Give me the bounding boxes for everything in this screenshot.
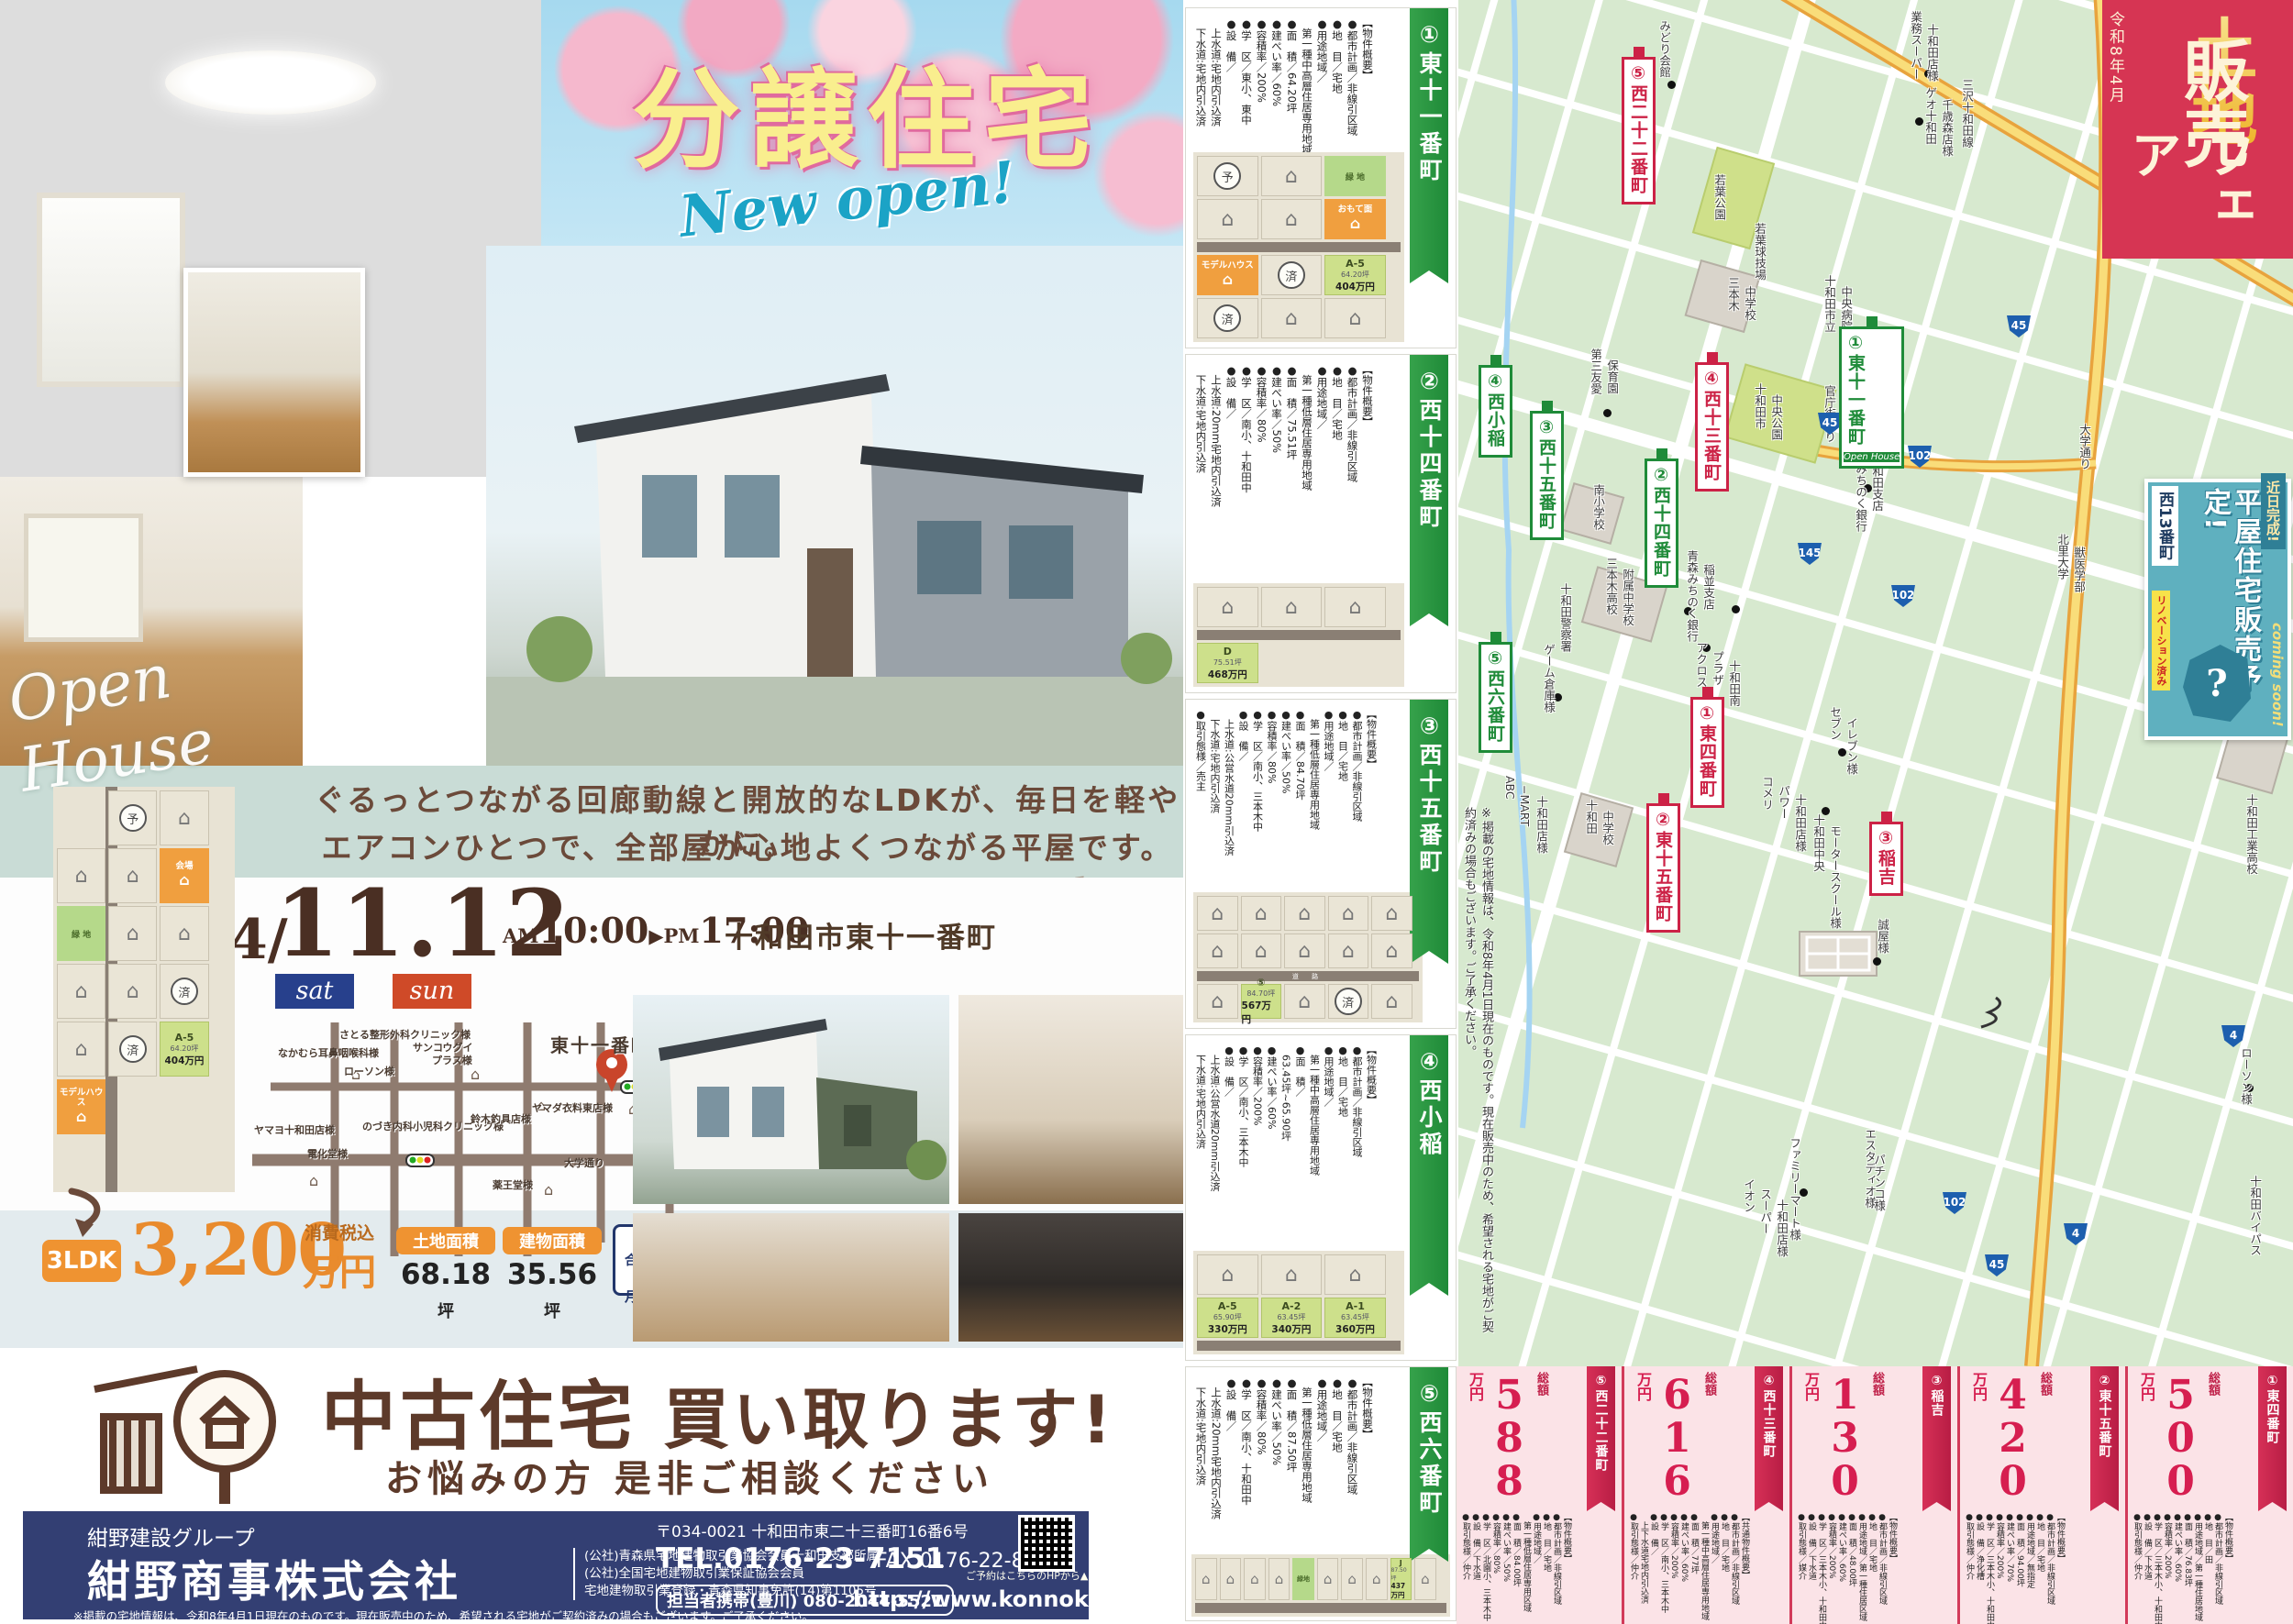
map-poi-label: 若葉球技場 bbox=[1754, 223, 1766, 281]
tagline-2: エアコンひとつで、全部屋が心地よくつながる平屋です。 bbox=[312, 823, 1183, 867]
property-details: 【物件概要】●都市計画／非線引区域●地 目／宅地●用途地域／ 第一種低層住居専用… bbox=[1193, 1376, 1375, 1556]
property-map-marker: ⑤西二十二番町 bbox=[1622, 57, 1656, 204]
marker-flag-icon bbox=[1867, 316, 1878, 327]
map-poi-label: 十和田 bbox=[1585, 800, 1597, 834]
panel-ribbon: ④西十三番町 bbox=[1755, 1366, 1783, 1511]
panel-details: 【物件概要】●都市計画／非線引区域●地 目／宅地●用途地域／第一種住居区域●面 … bbox=[1796, 1513, 1897, 1619]
plot-diagram: D75.51坪468万円 bbox=[1193, 583, 1404, 687]
ceiling-light bbox=[165, 50, 376, 115]
property-map-marker: ③西十五番町 bbox=[1530, 411, 1564, 540]
plot-cell: 予 bbox=[108, 790, 157, 845]
map-poi-label: みどり会館 bbox=[1658, 20, 1670, 78]
panel-details: 【物件概要】●都市計画／非線引区域●地 目／宅地●用途地域／無指定●面 積／94… bbox=[1964, 1513, 2065, 1619]
access-map-label: なかむら耳鼻咽喉科様 bbox=[278, 1048, 379, 1060]
map-poi-label: 若葉公園 bbox=[1713, 174, 1725, 220]
access-map-label: プラス様 bbox=[432, 1055, 472, 1067]
map-poi-label: 十和田店様 bbox=[1794, 794, 1806, 852]
plot-cell bbox=[108, 906, 157, 961]
marker-flag-icon bbox=[1881, 812, 1892, 823]
plot-cell bbox=[160, 906, 208, 961]
map-poi-label: 誠屋様 bbox=[1877, 919, 1889, 954]
event-place: 十和田市東十一番町 bbox=[725, 914, 997, 956]
plot-cell bbox=[57, 848, 105, 903]
land-sale-fair-banner: 土地 販売 フェア 令和8年4月 bbox=[2102, 0, 2293, 259]
plot-diagram: 緑地J87.50坪437万円 bbox=[1191, 1554, 1450, 1617]
interior-photo-inset bbox=[183, 268, 365, 477]
property-details: 【物件概要】●都市計画／非線引区域●地 目／宅地●用途地域／ 第一種低層住居専用… bbox=[1193, 709, 1379, 903]
property-details: 【物件概要】●都市計画／非線引区域●地 目／宅地●用途地域／ 第一種低層住居専用… bbox=[1193, 364, 1375, 547]
map-poi-label: ローソン様 bbox=[2240, 1047, 2252, 1105]
property-map-marker: ③稲吉 bbox=[1869, 822, 1903, 896]
map-poi-label: 大学通り bbox=[2078, 424, 2090, 470]
map-poi-label: イオン bbox=[1743, 1178, 1755, 1213]
map-poi-label: 附属中学校 bbox=[1622, 569, 1634, 626]
magnifier-house-illustration bbox=[87, 1334, 316, 1508]
flyer-page: 分譲住宅 New open! Open House Model House ぐる… bbox=[0, 0, 2293, 1624]
price-tax-note: 消費税込 bbox=[305, 1220, 374, 1244]
map-poi-label: セブン bbox=[1829, 706, 1841, 741]
map-poi-label: コメリ bbox=[1761, 776, 1773, 811]
map-poi-label: 中学校 bbox=[1601, 811, 1613, 845]
map-poi-label: 三沢十和田線 bbox=[1961, 79, 1973, 148]
postal-address: 〒034-0021 十和田市東二十三番町16番6号 bbox=[656, 1519, 969, 1541]
property-map-marker: ①東四番町 bbox=[1690, 697, 1724, 808]
qr-code bbox=[1018, 1515, 1075, 1572]
map-poi-label: 保育園 bbox=[1606, 359, 1618, 394]
marker-flag-icon bbox=[1542, 401, 1553, 412]
map-poi-label: 十和田中央 bbox=[1812, 814, 1824, 872]
property-ribbon: ④西小稲 bbox=[1410, 1035, 1448, 1296]
footer: 紺野建設グループ 紺野商事株式会社 (公社)青森県宅地建物取引業協会会員十和田支… bbox=[23, 1511, 1089, 1619]
marker-flag-icon bbox=[1634, 47, 1645, 58]
map-poi-label: ファミリーマート様 bbox=[1789, 1137, 1800, 1241]
map-poi-label: 十和田工業高校 bbox=[2245, 794, 2257, 875]
sale-panel-higashi15: 総額420万円 ②東十五番町 【物件概要】●都市計画／非線引区域●地 目／宅地●… bbox=[1957, 1366, 2125, 1624]
map-poi-label: 中央公園 bbox=[1770, 394, 1782, 440]
access-map-label: ヤマダ衣料東店様 bbox=[532, 1103, 613, 1115]
sale-panel-inayoshi: 総額130万円 ③稲吉 【物件概要】●都市計画／非線引区域●地 目／宅地●用途地… bbox=[1789, 1366, 1957, 1624]
map-poi-label: −MART bbox=[1519, 785, 1531, 826]
property-card-nishi6: 【物件概要】●都市計画／非線引区域●地 目／宅地●用途地域／ 第一種低層住居専用… bbox=[1185, 1366, 1457, 1621]
map-poi-label: 稲並支店 bbox=[1702, 564, 1714, 610]
property-map-marker: ④西十三番町 bbox=[1695, 362, 1729, 492]
marker-flag-icon bbox=[1490, 355, 1501, 366]
marker-flag-icon bbox=[1707, 352, 1718, 363]
map-poi-dot bbox=[1667, 81, 1676, 89]
svg-text:⌂: ⌂ bbox=[309, 1172, 318, 1189]
property-card-nishikoina: 【物件概要】●都市計画／非線引区域●地 目／宅地●用途地域／ 第一種中高層住居専… bbox=[1185, 1034, 1457, 1361]
plot-cell bbox=[160, 790, 208, 845]
panel-details: 【物件概要】●都市計画／非線引区域●地 目／田●用途地域／第一種住居地域●面 積… bbox=[2132, 1513, 2232, 1619]
map-disclaimer: ※掲載の宅地情報は、令和8年4月1日現在のものです。現在販売中のため、希望される… bbox=[1460, 807, 1495, 1339]
plot-cell: 緑 地 bbox=[57, 906, 105, 961]
panel-details: 【物件概要】●都市計画／非線引区域●地 目／宅地●用途地域／ 第一種低層住居専用… bbox=[1460, 1513, 1571, 1619]
map-poi-label: 十和田バイパス bbox=[2249, 1176, 2261, 1256]
property-card-nishi15: 【物件概要】●都市計画／非線引区域●地 目／宅地●用途地域／ 第一種低層住居専用… bbox=[1185, 699, 1457, 1029]
map-poi-label: 三本木高校 bbox=[1605, 558, 1617, 615]
map-poi-label: 十和田店様 bbox=[1776, 1199, 1788, 1257]
map-poi-label: 十和田南 bbox=[1728, 660, 1740, 706]
access-map-label: 鈴木釣具店様 bbox=[471, 1114, 531, 1126]
pm-label: PM bbox=[664, 924, 700, 947]
fair-title-3: フェア bbox=[2115, 128, 2264, 259]
property-ribbon: ②西十四番町 bbox=[1410, 355, 1448, 626]
window bbox=[24, 514, 143, 642]
map-poi-label: 獣医学部 bbox=[2073, 547, 2085, 592]
plot-cell: A-564.20坪404万円 bbox=[160, 1022, 208, 1077]
svg-text:⌂: ⌂ bbox=[471, 1066, 480, 1083]
access-map-label: 大学通り bbox=[564, 1158, 604, 1170]
property-card-nishi14: 【物件概要】●都市計画／非線引区域●地 目／宅地●用途地域／ 第一種低層住居専用… bbox=[1185, 354, 1457, 693]
map-poi-label: 南小学校 bbox=[1592, 484, 1604, 530]
marker-flag-icon bbox=[1658, 793, 1669, 804]
house-exterior-photo bbox=[486, 246, 1183, 766]
plot-cell: 済 bbox=[160, 964, 208, 1019]
access-map-label: ローソン様 bbox=[344, 1066, 394, 1078]
map-poi-label: 十和田市立 bbox=[1823, 275, 1835, 333]
map-poi-label: 十和田店様 bbox=[1926, 24, 1938, 82]
panel-details: 【共通物件概要】●都市計画／非線引区域●地 目／宅地●用途地域／ 第一種中高層住… bbox=[1628, 1513, 1749, 1619]
property-map-marker: ①東十一番町 Open House bbox=[1839, 326, 1904, 469]
total-price: 総額130万円 bbox=[1800, 1372, 1886, 1509]
map-poi-dot bbox=[1603, 409, 1612, 417]
window bbox=[37, 193, 185, 387]
property-ribbon: ①東十一番町 bbox=[1410, 8, 1448, 283]
map-poi-label: イレブン様 bbox=[1845, 717, 1857, 775]
access-map-label: 電化堂様 bbox=[307, 1149, 348, 1161]
plot-cell bbox=[108, 848, 157, 903]
sale-panel-nishi22: 総額588万円 ⑤西二十二番町 【物件概要】●都市計画／非線引区域●地 目／宅地… bbox=[1457, 1366, 1622, 1624]
model-house-photo bbox=[633, 995, 949, 1204]
marker-flag-icon bbox=[1656, 448, 1667, 459]
marker-flag-icon bbox=[1702, 687, 1713, 698]
land-area-box: 土地面積 68.18坪 bbox=[396, 1227, 495, 1324]
map-poi-label: 中学校 bbox=[1744, 286, 1756, 321]
plot-cell: モデルハウス bbox=[57, 1079, 105, 1134]
panel-ribbon: ①東四番町 bbox=[2258, 1366, 2287, 1511]
saturday-badge: sat bbox=[275, 974, 354, 1009]
map-poi-label: 青森みちのく銀行 bbox=[1686, 550, 1698, 642]
map-poi-label: 十和田警察署 bbox=[1559, 583, 1571, 652]
access-map-label: サンコウグイ bbox=[413, 1043, 473, 1055]
kaitori-subtitle: お悩みの方 是非ご相談ください bbox=[385, 1449, 1082, 1502]
arrow-to-price bbox=[55, 1188, 128, 1243]
map-poi-label: パワー bbox=[1778, 785, 1789, 820]
plot-diagram: 予緑 地おもて面モデルハウス済A-564.20坪404万円済 bbox=[1193, 152, 1404, 342]
property-map-marker: ②西十四番町 bbox=[1645, 458, 1678, 588]
map-poi-label: パチンコ様 bbox=[1873, 1154, 1885, 1211]
time-arrow: ▶ bbox=[648, 924, 663, 947]
access-map-label: さとる整形外科クリニック様 bbox=[339, 1030, 471, 1042]
property-map-marker: ②東十五番町 bbox=[1646, 803, 1680, 933]
map-poi-label: 十和田店様 bbox=[1535, 796, 1547, 854]
property-map-marker: ④西小稲 bbox=[1479, 365, 1512, 458]
plot-cell bbox=[57, 1022, 105, 1077]
company-name: 紺野商事株式会社 bbox=[87, 1546, 461, 1609]
panel-ribbon: ②東十五番町 bbox=[2090, 1366, 2119, 1511]
map-poi-label: 中央病院 bbox=[1840, 286, 1852, 332]
property-map-marker: ⑤西六番町 bbox=[1479, 642, 1512, 753]
coming-soon-flag: 近日完成! bbox=[2261, 473, 2286, 549]
building-area-label: 建物面積 bbox=[503, 1227, 602, 1254]
map-poi-label: 北里大学 bbox=[2056, 534, 2068, 580]
sunday-badge: sun bbox=[393, 974, 471, 1009]
map-poi-label: 第三友愛 bbox=[1590, 348, 1601, 394]
coming-soon-script: coming soon! bbox=[2269, 623, 2286, 727]
fair-date: 令和8年4月 bbox=[2104, 11, 2127, 105]
city-map: ※掲載の宅地情報は、令和8年4月1日現在のものです。現在販売中のため、希望される… bbox=[1458, 0, 2293, 1366]
plot-cell: 済 bbox=[108, 1022, 157, 1077]
map-poi-label: ゲーム倉庫様 bbox=[1543, 644, 1555, 713]
map-poi-dot bbox=[1732, 605, 1740, 613]
coming-soon-callout: 近日完成! 平屋住宅販売予定! 西13番町 リノベーション済み ? coming… bbox=[2144, 479, 2291, 740]
property-details: 【物件概要】●都市計画／非線引区域●地 目／宅地●用途地域／ 第一種中高層住居専… bbox=[1193, 1044, 1379, 1235]
model-plot-diagram: 予会場緑 地済済A-564.20坪404万円モデルハウス bbox=[53, 787, 235, 1192]
plot-diagram: A-565.90坪330万円A-263.45坪340万円A-163.45坪360… bbox=[1193, 1251, 1404, 1354]
land-area-label: 土地面積 bbox=[396, 1227, 495, 1254]
website-url: http://www.konnok.co.jp bbox=[853, 1586, 1157, 1612]
map-poi-label: アクロス bbox=[1695, 642, 1707, 688]
map-poi-label: 十和田市 bbox=[1754, 383, 1766, 429]
access-map-label: 薬王堂様 bbox=[493, 1180, 533, 1192]
interior-photo-dining bbox=[633, 1213, 949, 1342]
coming-soon-town: 西13番町 bbox=[2152, 486, 2178, 566]
map-poi-label: ABC bbox=[1504, 776, 1516, 800]
property-ribbon: ③西十五番町 bbox=[1410, 700, 1448, 964]
price-unit: 万円 bbox=[303, 1243, 376, 1296]
plot-cell bbox=[108, 964, 157, 1019]
total-price: 総額420万円 bbox=[1967, 1372, 2054, 1509]
marker-flag-icon bbox=[1490, 632, 1501, 643]
house-illustration bbox=[486, 246, 1183, 766]
total-price: 総額588万円 bbox=[1464, 1372, 1550, 1509]
interior-photo-kitchen bbox=[958, 995, 1183, 1204]
land-area-value: 68.18坪 bbox=[396, 1258, 495, 1324]
start-time: 10:00 bbox=[539, 910, 649, 951]
access-map-label: ヤマヨ十和田店様 bbox=[254, 1125, 335, 1137]
property-ribbon: ⑤西六番町 bbox=[1410, 1367, 1448, 1562]
building-area-value: 35.56坪 bbox=[503, 1258, 602, 1324]
map-poi-dot bbox=[1873, 957, 1881, 966]
interior-photo-bedroom bbox=[958, 1213, 1183, 1342]
map-poi-label: モータースクール様 bbox=[1829, 825, 1841, 929]
ldk-badge: 3LDK bbox=[42, 1240, 121, 1282]
map-poi-label: ゲオ十和田 bbox=[1924, 87, 1936, 145]
map-poi-label: 千歳森店様 bbox=[1941, 99, 1953, 157]
map-poi-label: 業務スーパー bbox=[1910, 11, 1922, 80]
plot-cell bbox=[57, 964, 105, 1019]
map-poi-label: 三本木 bbox=[1727, 277, 1739, 312]
total-price: 総額616万円 bbox=[1632, 1372, 1718, 1509]
coming-soon-note: リノベーション済み bbox=[2152, 591, 2170, 690]
total-price: 総額500万円 bbox=[2135, 1372, 2221, 1509]
question-house-icon: ? bbox=[2183, 645, 2251, 722]
svg-text:⌂: ⌂ bbox=[544, 1181, 553, 1199]
map-poi-dot bbox=[1915, 117, 1923, 126]
plot-diagram: 道 路⑤84.70坪567万円済 bbox=[1193, 892, 1423, 1022]
sale-panel-higashi4: 総額500万円 ①東四番町 【物件概要】●都市計画／非線引区域●地 目／田●用途… bbox=[2125, 1366, 2293, 1624]
map-poi-label: スーパー bbox=[1759, 1188, 1771, 1234]
land-sale-panels: 総額588万円 ⑤西二十二番町 【物件概要】●都市計画／非線引区域●地 目／宅地… bbox=[1457, 1366, 2293, 1624]
am-label: AM bbox=[503, 924, 539, 947]
building-area-box: 建物面積 35.56坪 bbox=[503, 1227, 602, 1324]
panel-ribbon: ⑤西二十二番町 bbox=[1587, 1366, 1615, 1511]
sale-panel-nishi13: 総額616万円 ④西十三番町 【共通物件概要】●都市計画／非線引区域●地 目／宅… bbox=[1622, 1366, 1789, 1624]
map-poi-label: プラザ bbox=[1711, 651, 1723, 686]
property-card-higashi11: 【物件概要】●都市計画／非線引区域●地 目／宅地●用途地域／ 第一種中高層住居専… bbox=[1185, 7, 1457, 348]
panel-ribbon: ③稲吉 bbox=[1922, 1366, 1951, 1511]
plot-cell: 会場 bbox=[160, 848, 208, 903]
